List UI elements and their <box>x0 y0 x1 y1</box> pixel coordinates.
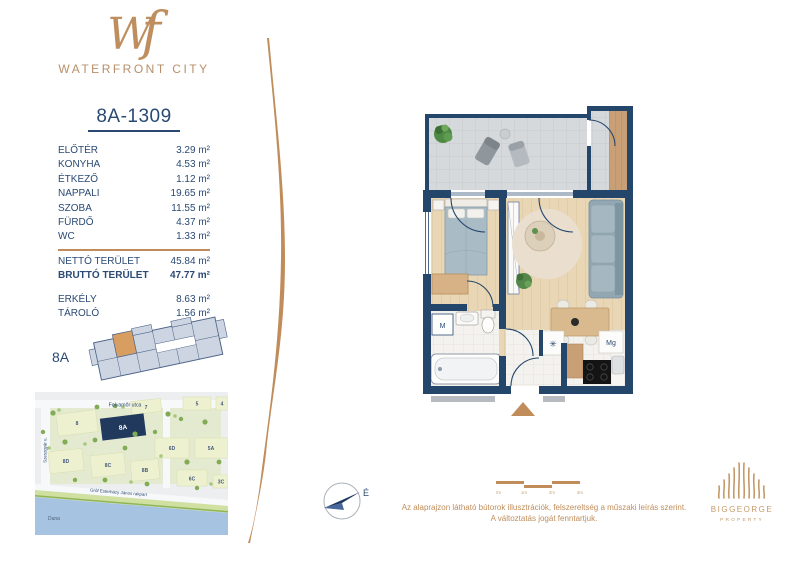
disclaimer-line1: Az alaprajzon látható bútorok illusztrác… <box>398 502 690 513</box>
disclaimer-line2: A változtatás jogát fenntartjuk. <box>398 513 690 524</box>
area-row: ELŐTÉR3.29 m² <box>58 144 210 158</box>
area-row: KONYHA4.53 m² <box>58 158 210 172</box>
washer-label: M <box>440 323 446 330</box>
street-top-label: Folyamőr utca <box>109 403 142 409</box>
scale-bar: 0m 1m 2m 3m <box>496 478 584 498</box>
sofa <box>589 200 623 298</box>
map-bldg: 8D <box>63 459 70 465</box>
brush-stroke-separator <box>233 38 297 543</box>
bathroom-sink <box>456 312 478 325</box>
area-table: ELŐTÉR3.29 m² KONYHA4.53 m² ÉTKEZŐ1.12 m… <box>58 144 210 321</box>
map-bldg: 7 <box>145 405 148 411</box>
publisher-division: PROPERTY <box>720 517 764 523</box>
storage-floor <box>609 111 628 192</box>
building-overview-plan: 8A <box>38 306 238 392</box>
biggeorge-lines-icon <box>719 463 765 498</box>
map-bldg-8a-label: 8A <box>119 424 128 432</box>
gross-area-row: BRUTTÓ TERÜLET47.77 m² <box>58 269 210 283</box>
publisher-name: BIGGEORGE <box>711 505 773 514</box>
scale-tick: 3m <box>577 490 584 495</box>
map-bldg: 6D <box>169 446 176 452</box>
floor-plan: M ✳ Mg <box>423 104 637 422</box>
fridge-label: ✳ <box>549 339 557 349</box>
map-bldg: 4 <box>221 402 224 408</box>
map-bldg: 8 <box>76 421 79 427</box>
plant-icon <box>516 273 532 289</box>
area-row: ÉTKEZŐ1.12 m² <box>58 173 210 187</box>
balcony-table <box>500 129 510 139</box>
scale-tick: 2m <box>549 490 556 495</box>
north-label: É <box>363 488 369 498</box>
coffee-table <box>525 221 555 251</box>
brand-logo: Wf WATERFRONT CITY <box>58 6 210 76</box>
overview-label: 8A <box>52 349 70 365</box>
brand-name: WATERFRONT CITY <box>58 62 210 76</box>
area-row: FÜRDŐ4.37 m² <box>58 216 210 230</box>
disclaimer: Az alaprajzon látható bútorok illusztrác… <box>398 502 690 524</box>
street-left-label: Szeszgyár u. <box>43 437 48 462</box>
left-info-panel: Wf WATERFRONT CITY 8A-1309 ELŐTÉR3.29 m²… <box>58 6 210 321</box>
desk <box>432 274 468 294</box>
site-map: Folyamőr utca Szeszgyár u. Gróf Esterház… <box>35 392 228 535</box>
balcony-row: ERKÉLY8.63 m² <box>58 293 210 307</box>
map-bldg: 3C <box>218 480 225 486</box>
bathtub <box>431 354 501 384</box>
ledge <box>431 396 495 402</box>
unit-id: 8A-1309 <box>88 106 179 132</box>
area-row: NAPPALI19.65 m² <box>58 187 210 201</box>
nightstand <box>488 200 499 210</box>
scale-tick: 1m <box>521 490 528 495</box>
entrance-arrow-icon <box>511 402 535 416</box>
balcony-floor <box>429 118 587 192</box>
divider <box>58 249 210 251</box>
nightstand <box>433 200 444 210</box>
kitchen-cabinet <box>565 344 583 378</box>
scale-tick: 0m <box>496 490 501 495</box>
map-bldg: 6C <box>189 477 196 483</box>
ledge <box>543 396 565 402</box>
dishwasher-label: Mg <box>606 340 616 347</box>
bed <box>445 199 487 275</box>
publisher-logo: BIGGEORGE PROPERTY <box>700 458 786 534</box>
area-row: SZOBA11.55 m² <box>58 202 210 216</box>
kitchen-sink <box>612 356 624 374</box>
wf-monogram-icon: Wf <box>58 6 210 58</box>
cooktop <box>583 360 611 384</box>
area-row: WC1.33 m² <box>58 230 210 244</box>
net-area-row: NETTÓ TERÜLET45.84 m² <box>58 255 210 269</box>
map-bldg: 8C <box>105 463 112 469</box>
map-bldg: 5A <box>208 446 215 452</box>
highlighted-unit <box>112 331 136 358</box>
compass: É <box>318 474 376 530</box>
map-bldg: 8B <box>142 468 149 474</box>
map-bldg: 5 <box>196 402 199 408</box>
river-label: Duna <box>48 516 60 522</box>
toilet <box>481 310 495 333</box>
